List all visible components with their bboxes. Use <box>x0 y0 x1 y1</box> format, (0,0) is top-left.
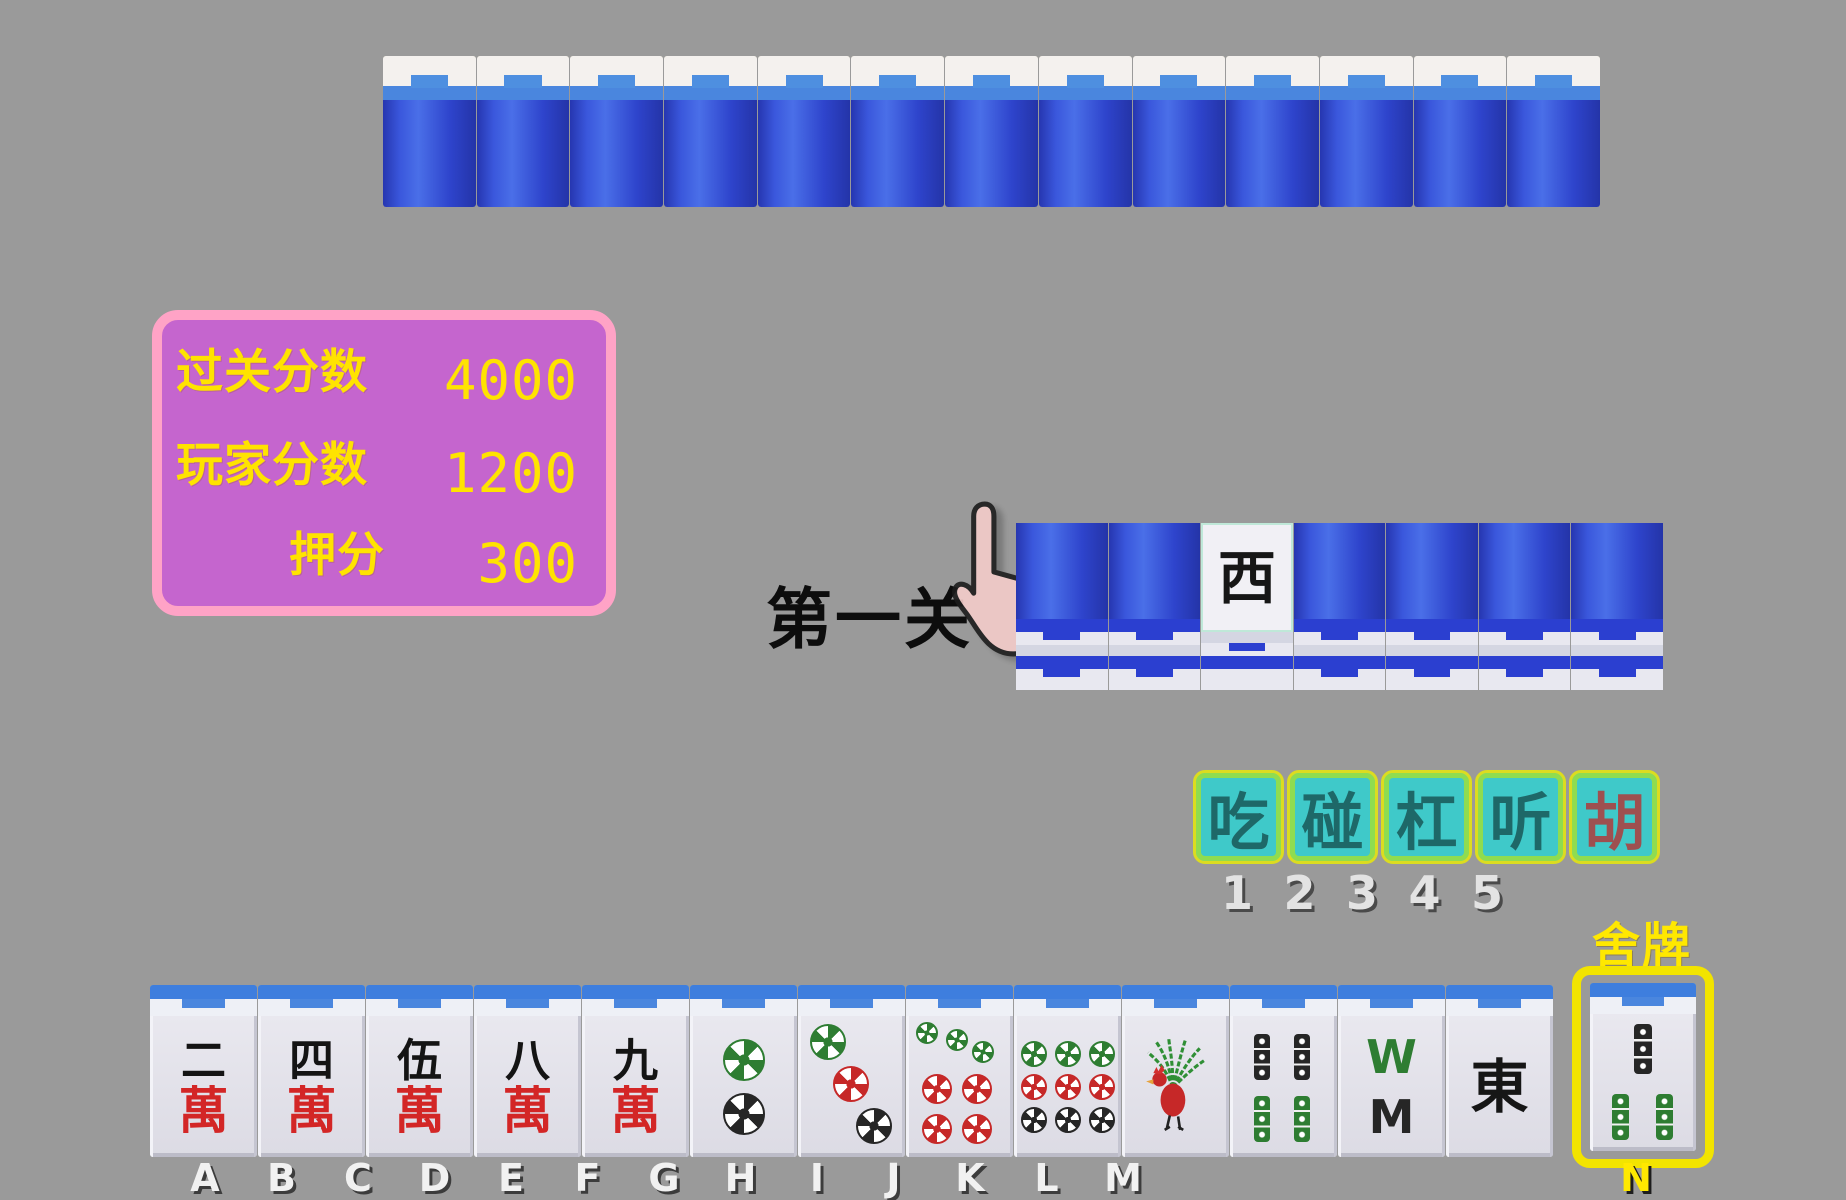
action-button-听[interactable]: 听 <box>1475 770 1566 864</box>
face-down-wall-tile <box>664 56 757 207</box>
wan-character: 萬 <box>503 1086 553 1136</box>
dot-pip <box>922 1114 952 1144</box>
tile-4-wan[interactable]: 四萬 <box>258 985 365 1157</box>
dot-pip <box>1021 1107 1047 1133</box>
tile-4-bamboo[interactable] <box>1230 985 1337 1157</box>
bet-score-value: 300 <box>477 532 578 595</box>
slot-label-B: B <box>267 1156 296 1200</box>
tile-8-wan[interactable]: 八萬 <box>474 985 581 1157</box>
face-down-wall-tile <box>570 56 663 207</box>
action-key-1: 1 <box>1221 866 1253 920</box>
tile-face-down-tile <box>1571 523 1663 690</box>
score-row-pass: 过关分数 4000 <box>176 333 584 403</box>
player-hand: 二萬四萬伍萬八萬九萬WM東 <box>150 985 1554 1157</box>
slot-label-G: G <box>648 1156 679 1200</box>
dot-pip <box>916 1022 938 1044</box>
action-bar: 吃碰杠听胡 <box>1193 770 1660 864</box>
face-down-wall-tile <box>1414 56 1507 207</box>
slot-label-A: A <box>190 1156 219 1200</box>
dot-pip <box>1089 1074 1115 1100</box>
slot-label-M: M <box>1104 1156 1142 1200</box>
dot-pip <box>723 1039 765 1081</box>
face-down-wall-tile <box>1320 56 1413 207</box>
action-button-吃[interactable]: 吃 <box>1193 770 1284 864</box>
pass-score-value: 4000 <box>444 349 578 412</box>
wan-number: 四 <box>289 1038 334 1083</box>
slot-label-I: I <box>810 1156 824 1200</box>
bamboo-m-shape: M <box>1338 1094 1445 1140</box>
dot-pip <box>962 1074 992 1104</box>
tile-face-down-tile <box>1294 523 1386 690</box>
pass-score-label: 过关分数 <box>176 345 368 400</box>
slot-label-n: N <box>1620 1156 1652 1200</box>
dot-pip <box>810 1024 846 1060</box>
slot-label-C: C <box>344 1156 372 1200</box>
score-row-bet: 押分 300 <box>176 516 584 586</box>
dot-pip <box>1021 1074 1047 1100</box>
dot-pip <box>1089 1041 1115 1067</box>
tile-2-wan[interactable]: 二萬 <box>150 985 257 1157</box>
wind-character: 西 <box>1218 549 1276 607</box>
tile-face-down-tile <box>1479 523 1571 690</box>
wan-character: 萬 <box>395 1086 445 1136</box>
opponent-wall <box>383 56 1601 207</box>
face-down-wall-tile <box>477 56 570 207</box>
level-label: 第一关 <box>766 566 973 662</box>
exposed-tile-row: 西 <box>1016 523 1664 690</box>
dot-pip <box>1055 1107 1081 1133</box>
wind-character: 東 <box>1470 1058 1528 1116</box>
dot-pip <box>1089 1107 1115 1133</box>
bamboo-stick <box>1294 1034 1310 1080</box>
face-down-wall-tile <box>851 56 944 207</box>
wan-number: 伍 <box>397 1038 442 1083</box>
slot-label-J: J <box>886 1156 900 1200</box>
face-down-wall-tile <box>1226 56 1319 207</box>
wan-character: 萬 <box>611 1086 661 1136</box>
score-panel: 过关分数 4000 玩家分数 1200 押分 300 <box>152 310 616 616</box>
dot-pip <box>962 1114 992 1144</box>
tile-east-wind[interactable]: 東 <box>1446 985 1553 1157</box>
tile-8-bamboo[interactable]: WM <box>1338 985 1445 1157</box>
tile-face-down-tile <box>1016 523 1108 690</box>
dot-pip <box>723 1093 765 1135</box>
face-down-wall-tile <box>1133 56 1226 207</box>
tile-9-wan[interactable]: 九萬 <box>582 985 689 1157</box>
bet-score-label: 押分 <box>289 528 385 583</box>
dot-pip <box>946 1029 968 1051</box>
bamboo-stick <box>1634 1024 1652 1074</box>
action-button-碰[interactable]: 碰 <box>1287 770 1378 864</box>
dot-pip <box>1021 1041 1047 1067</box>
face-down-wall-tile <box>945 56 1038 207</box>
tile-face-down-tile <box>1109 523 1201 690</box>
player-score-value: 1200 <box>444 442 578 505</box>
tile-7-dots[interactable] <box>906 985 1013 1157</box>
face-down-wall-tile <box>1507 56 1600 207</box>
wan-number: 二 <box>181 1038 226 1083</box>
discard-tile[interactable] <box>1590 983 1696 1151</box>
bamboo-stick <box>1656 1094 1673 1140</box>
bamboo-stick <box>1254 1096 1270 1142</box>
dot-pip <box>972 1041 994 1063</box>
slot-label-D: D <box>419 1156 451 1200</box>
slot-label-H: H <box>725 1156 757 1200</box>
tile-9-dots[interactable] <box>1014 985 1121 1157</box>
action-key-4: 4 <box>1408 866 1440 920</box>
dot-pip <box>1055 1074 1081 1100</box>
bamboo-stick <box>1612 1094 1629 1140</box>
bamboo-stick <box>1254 1034 1270 1080</box>
action-key-3: 3 <box>1346 866 1378 920</box>
tile-5-wan[interactable]: 伍萬 <box>366 985 473 1157</box>
dot-pip <box>922 1074 952 1104</box>
action-button-杠[interactable]: 杠 <box>1381 770 1472 864</box>
dot-pip <box>856 1108 892 1144</box>
face-down-wall-tile <box>1039 56 1132 207</box>
bamboo-w-shape: W <box>1338 1034 1445 1080</box>
face-down-wall-tile <box>758 56 851 207</box>
bamboo-stick <box>1294 1096 1310 1142</box>
wan-character: 萬 <box>287 1086 337 1136</box>
action-key-5: 5 <box>1471 866 1503 920</box>
tile-2-dots[interactable] <box>690 985 797 1157</box>
rooster-icon <box>1144 1036 1206 1134</box>
player-score-label: 玩家分数 <box>176 438 368 493</box>
wan-number: 八 <box>505 1038 550 1083</box>
slot-label-L: L <box>1034 1156 1058 1200</box>
action-button-胡[interactable]: 胡 <box>1569 770 1660 864</box>
dot-pip <box>833 1066 869 1102</box>
tile-west-wind-tile: 西 <box>1201 523 1293 690</box>
tile-1-bamboo-bird[interactable] <box>1122 985 1229 1157</box>
slot-label-E: E <box>498 1156 524 1200</box>
face-down-wall-tile <box>383 56 476 207</box>
wan-character: 萬 <box>179 1086 229 1136</box>
slot-label-F: F <box>575 1156 601 1200</box>
discard-slot[interactable] <box>1572 966 1714 1168</box>
slot-label-K: K <box>955 1156 984 1200</box>
score-row-player: 玩家分数 1200 <box>176 426 584 496</box>
wan-number: 九 <box>613 1038 658 1083</box>
tile-face-down-tile <box>1386 523 1478 690</box>
tile-3-dots[interactable] <box>798 985 905 1157</box>
action-key-2: 2 <box>1283 866 1315 920</box>
dot-pip <box>1055 1041 1081 1067</box>
